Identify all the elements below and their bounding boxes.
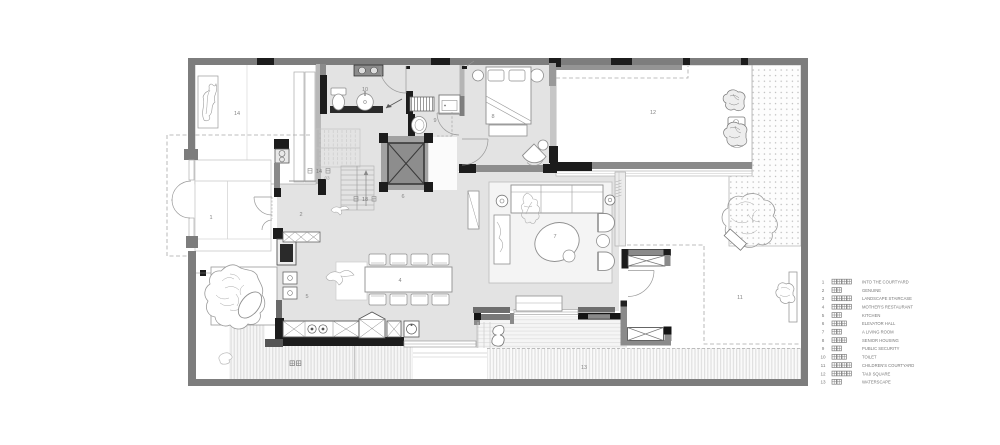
svg-text:3: 3 [822,296,825,301]
svg-text:13: 13 [581,365,587,371]
svg-text:12: 12 [650,110,656,116]
svg-text:18: 18 [362,197,368,203]
svg-text:6: 6 [401,194,404,200]
svg-text:2: 2 [299,212,302,218]
svg-text:14: 14 [316,169,322,175]
svg-text:4: 4 [822,305,825,310]
svg-text:6: 6 [822,321,825,326]
svg-text:5: 5 [305,294,308,300]
svg-text:PUBLIC SECURITY: PUBLIC SECURITY [862,346,900,351]
svg-text:2: 2 [822,288,825,293]
svg-text:1: 1 [822,279,825,284]
svg-text:10: 10 [820,355,826,360]
svg-text:4: 4 [398,278,401,284]
svg-text:11: 11 [821,363,826,368]
svg-text:KITCHEN: KITCHEN [862,313,880,318]
svg-text:9: 9 [822,346,825,351]
svg-text:CHILDREN'S COURTYARD: CHILDREN'S COURTYARD [862,363,914,368]
svg-text:03: 03 [324,176,330,181]
svg-text:INTO THE COURTYARD: INTO THE COURTYARD [862,279,909,284]
svg-text:10: 10 [362,87,368,93]
svg-text:9: 9 [433,118,436,124]
svg-text:TAIJI SQUARE: TAIJI SQUARE [862,371,891,376]
svg-text:ELEVATOR HALL: ELEVATOR HALL [862,321,896,326]
svg-text:1: 1 [209,215,212,221]
svg-text:A LIVING ROOM: A LIVING ROOM [862,330,894,335]
svg-text:5: 5 [822,313,825,318]
svg-text:11: 11 [737,295,743,301]
svg-text:13: 13 [820,380,826,385]
svg-text:WATERSCAPE: WATERSCAPE [862,380,891,385]
svg-text:LANDSCAPE STAIRCASE: LANDSCAPE STAIRCASE [862,296,912,301]
svg-text:12: 12 [820,371,826,376]
svg-text:7: 7 [553,234,556,240]
svg-text:GENUINE: GENUINE [862,288,881,293]
svg-text:MOTHER'S RESTAURANT: MOTHER'S RESTAURANT [862,305,913,310]
svg-text:7: 7 [822,330,825,335]
svg-text:SENIOR HOUSING: SENIOR HOUSING [862,338,899,343]
svg-text:TOILET: TOILET [862,355,877,360]
svg-text:14: 14 [234,111,240,117]
svg-text:8: 8 [491,114,494,120]
svg-text:8: 8 [822,338,825,343]
